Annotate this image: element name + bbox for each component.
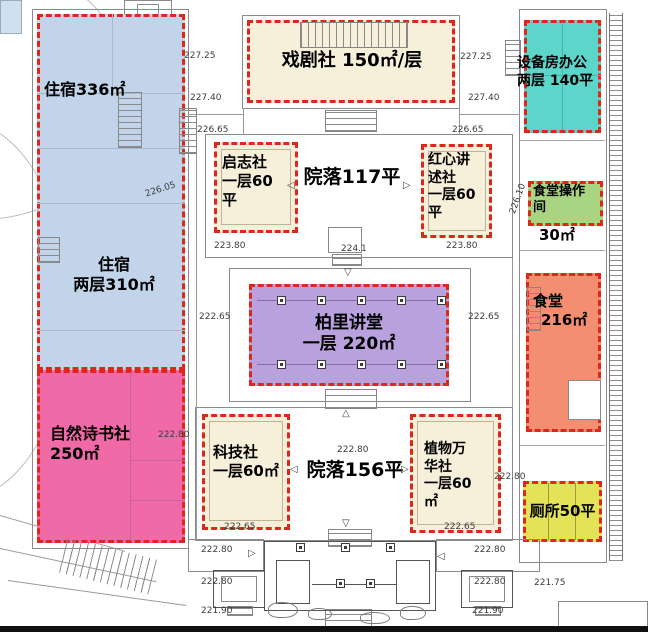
elevation-label: 227.25 [460,52,492,62]
porch-steps [325,110,377,132]
elevation-label: 226.65 [197,125,229,135]
elevation-label: 221.90 [201,606,233,616]
elevation-label: 222.80 [474,577,506,587]
arrow-right-icon: ▷ [248,549,256,559]
elevation-label: 221.90 [472,606,504,616]
column-icon [397,360,406,369]
elevation-label: 222.65 [468,312,500,322]
elevation-label: 222.80 [201,577,233,587]
wall-corridor-east [512,258,513,408]
gate-axis [312,584,396,585]
wall-corridor-west [196,134,197,541]
label-canteen: 食堂 216㎡ [533,292,599,330]
label-plant-club: 植物万 华社 一层60 ㎡ [424,441,496,511]
elevation-label: 222.65 [224,522,256,532]
elevation-label: 221.75 [534,578,566,588]
elevation-label: 222.80 [494,472,526,482]
column-icon [341,543,350,552]
gate-room [396,560,430,604]
elevation-label: 224.1 [341,244,367,254]
walkway [436,539,540,572]
label-line: 住宿 [45,255,183,275]
label-line: 柏里讲堂 [249,313,449,334]
arrow-right-icon: ▷ [403,181,411,191]
partition [37,203,185,204]
label-line: 一层60 [424,476,496,494]
elevation-label: 222.65 [444,522,476,532]
column-icon [357,296,366,305]
label-equipment-office: 设备房办公 两层 140平 [517,55,611,90]
floor-plan: 住宿336㎡ 住宿 两层310㎡ 戏剧社 150㎡/层 设备房办公 两层 140… [0,0,648,632]
label-line: 启志社 [222,153,296,172]
column-icon [357,360,366,369]
rock [360,612,390,624]
label-line: 两层 140平 [517,73,611,91]
column-icon [397,296,406,305]
porch-steps [325,389,377,409]
label-line: 华社 [424,459,496,477]
stairs [179,108,197,154]
label-canteen-operation: 食堂操作 间 [533,184,599,217]
arrow-down-icon: ▽ [344,268,352,278]
retaining-wall [609,13,623,561]
elevation-label: 226.65 [452,125,484,135]
stairs [300,22,408,48]
label-line: 食堂操作 [533,184,599,200]
label-line: 述社 [428,170,490,188]
label-line: 两层310㎡ [45,275,183,295]
label-line: 250㎡ [50,444,180,464]
label-line: 间 [533,200,599,216]
column-icon [437,296,446,305]
elevation-label: 227.40 [190,93,222,103]
label-dormitory-top: 住宿336㎡ [44,80,184,100]
label-upper-courtyard: 院落117平 [287,166,417,190]
label-lecture-hall: 柏里讲堂 一层 220㎡ [249,313,449,356]
corner-plot [0,0,22,34]
arrow-left-icon: ◁ [290,465,298,475]
label-drama-club: 戏剧社 150㎡/层 [252,50,452,73]
porch-steps [332,254,362,266]
arrow-left-icon: ◁ [287,181,295,191]
label-line: 红心讲 [428,152,490,170]
column-icon [386,543,395,552]
label-line: 平 [428,205,490,223]
elevation-label: 227.40 [468,93,500,103]
rock [400,606,426,620]
arrow-up-icon: △ [342,409,350,419]
label-canteen-operation-area: 30㎡ [539,226,575,245]
partition [520,250,605,251]
elevation-label: 222.80 [158,430,190,440]
partition [520,140,605,141]
gate-room [276,560,310,604]
rock [308,608,332,620]
label-line: 平 [222,191,296,210]
partition [520,445,605,446]
column-icon [317,296,326,305]
label-line: 216㎡ [533,311,599,330]
partition [37,148,185,149]
label-line: 一层60 [222,172,296,191]
column-icon [366,579,375,588]
label-tech-club: 科技社 一层60㎡ [213,443,299,481]
column-icon [296,543,305,552]
label-qizhi-club: 启志社 一层60 平 [222,153,296,209]
wall-connector [243,108,244,135]
rock [268,602,298,618]
label-line: 食堂 [533,292,599,311]
column-icon [336,579,345,588]
arrow-right-icon: ▷ [401,465,409,475]
road-edge [0,626,648,632]
arrow-down-icon: ▽ [342,519,350,529]
label-line: ㎡ [424,494,496,512]
contour-line [8,580,186,606]
label-dormitory-bottom: 住宿 两层310㎡ [45,255,183,295]
label-line: 一层60㎡ [213,462,299,481]
column-icon [437,360,446,369]
label-line: 设备房办公 [517,55,611,73]
elevation-label: 222.80 [201,545,233,555]
label-toilet: 厕所50平 [520,502,605,521]
label-redheart-club: 红心讲 述社 一层60 平 [428,152,490,222]
partition [37,330,185,331]
column-icon [317,360,326,369]
elevation-label: 222.80 [337,445,369,455]
label-line: 植物万 [424,441,496,459]
canteen-recess [568,380,601,420]
arrow-left-icon: ◁ [437,552,445,562]
wall-connector [459,114,520,115]
column-icon [277,296,286,305]
elevation-label: 223.80 [446,241,478,251]
label-line: 一层60 [428,187,490,205]
elevation-label: 223.80 [214,241,246,251]
label-line: 科技社 [213,443,299,462]
elevation-label: 227.25 [184,51,216,61]
stairs [118,92,142,148]
elevation-label: 222.80 [474,545,506,555]
label-line: 一层 220㎡ [249,334,449,355]
partition [130,500,185,501]
elevation-label: 222.65 [199,312,231,322]
column-icon [277,360,286,369]
